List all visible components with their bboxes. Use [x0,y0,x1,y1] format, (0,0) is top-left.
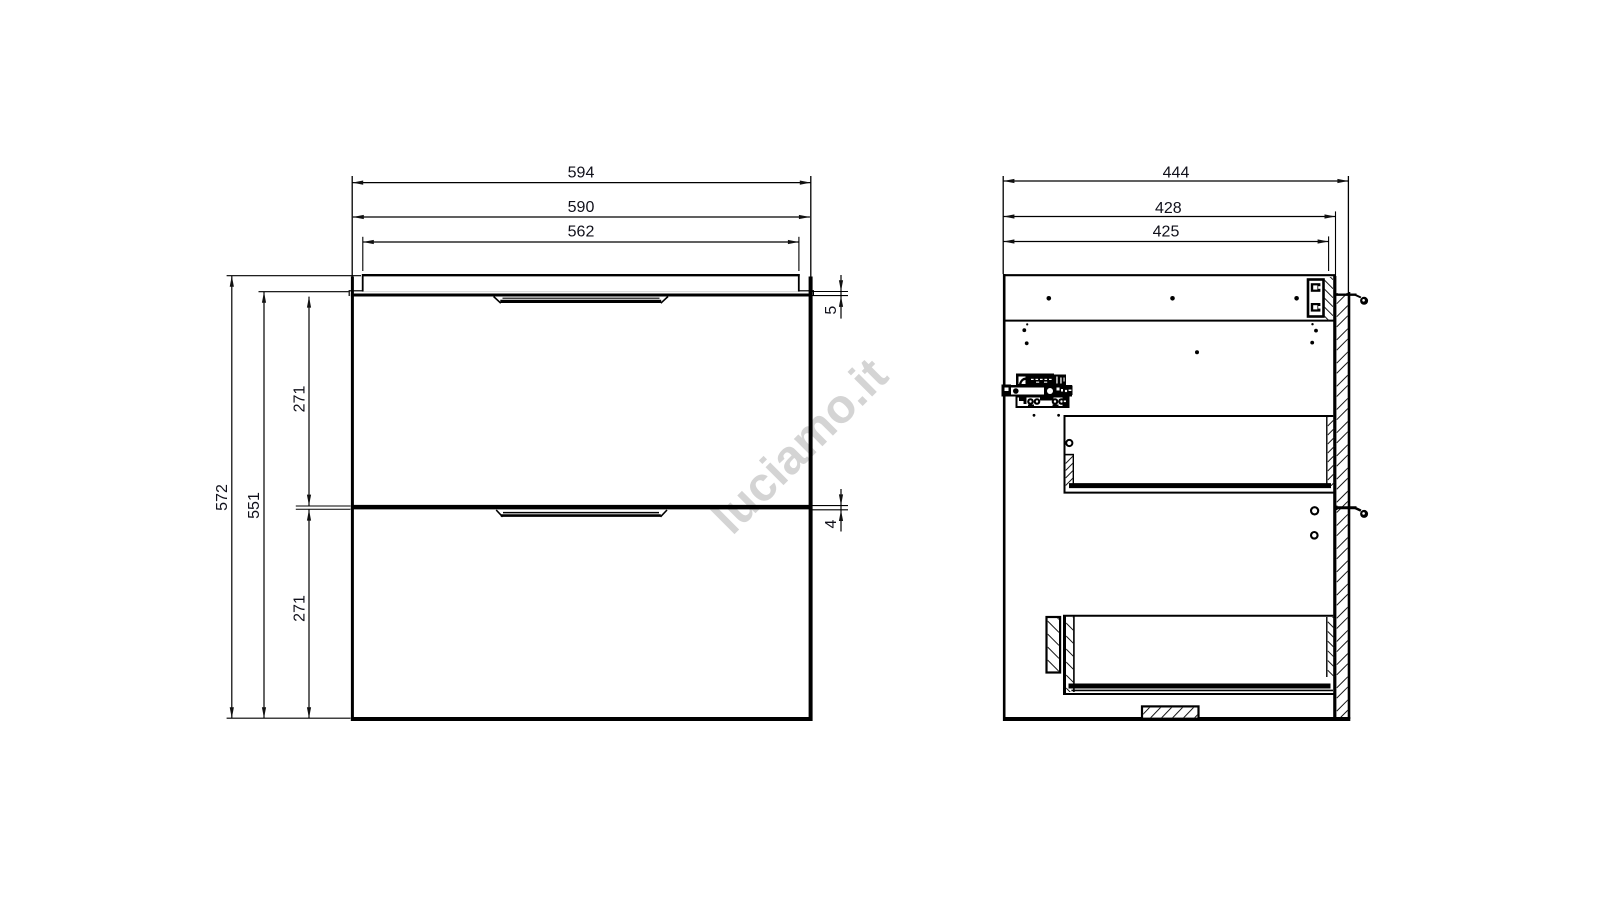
svg-text:4: 4 [823,519,840,528]
svg-text:271: 271 [292,386,309,413]
svg-text:271: 271 [292,595,309,622]
svg-text:425: 425 [1153,224,1180,241]
svg-text:428: 428 [1155,200,1182,217]
svg-text:551: 551 [246,492,263,519]
svg-text:444: 444 [1163,164,1190,181]
svg-text:572: 572 [214,484,231,511]
svg-text:594: 594 [568,165,595,182]
svg-text:562: 562 [568,223,595,240]
svg-text:5: 5 [823,306,840,315]
svg-text:590: 590 [568,199,595,216]
